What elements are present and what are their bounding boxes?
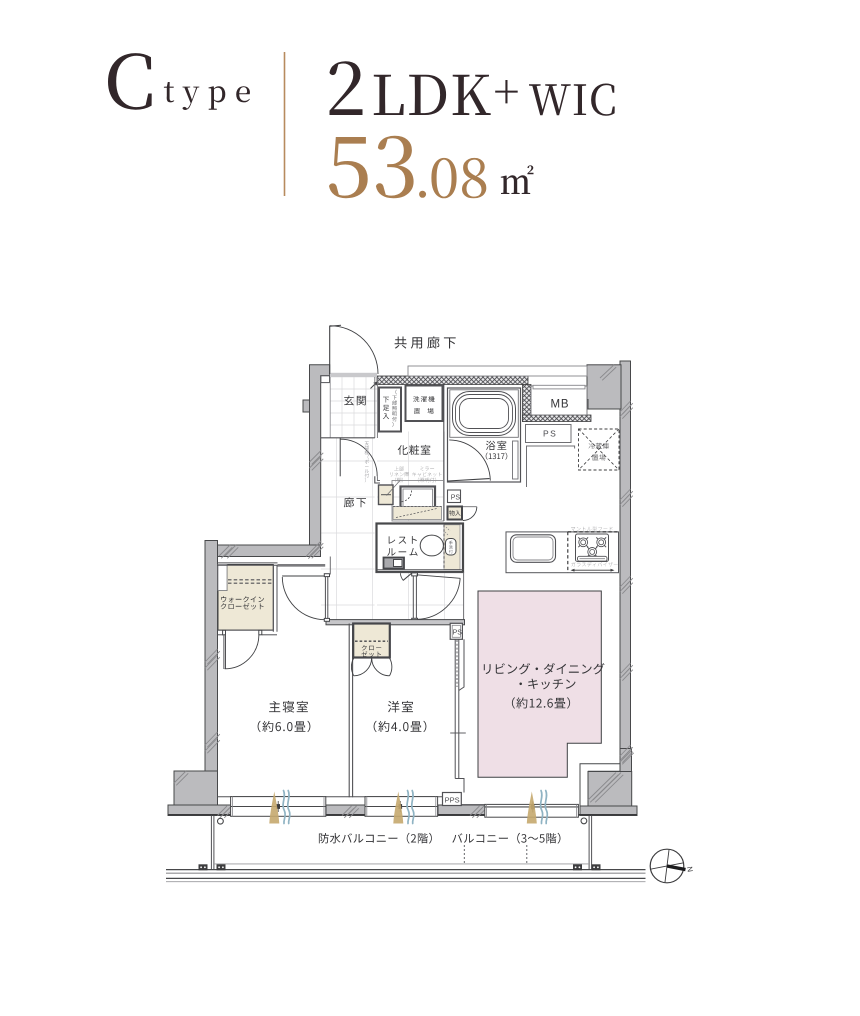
svg-text:PS: PS <box>543 429 557 439</box>
svg-text:PPS: PPS <box>445 795 460 804</box>
svg-text:MB: MB <box>551 399 570 411</box>
svg-text:PS: PS <box>451 494 461 501</box>
svg-text:PS: PS <box>453 630 463 637</box>
